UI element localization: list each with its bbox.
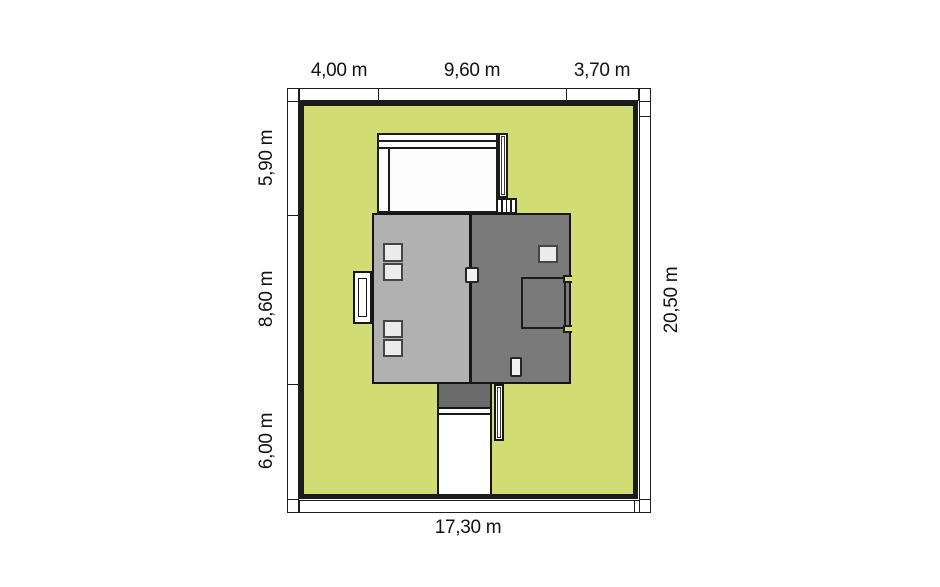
dimension-band-top xyxy=(287,88,651,101)
entrance-canopy xyxy=(437,384,492,409)
driveway xyxy=(437,415,492,494)
chimney xyxy=(510,357,522,377)
dimension-label-top-middle: 9,60 m xyxy=(422,60,522,82)
terrace-steps xyxy=(496,198,517,214)
site-plan: 4,00 m 9,60 m 3,70 m 5,90 m 8,60 m 6,00 … xyxy=(0,0,940,587)
chimney xyxy=(465,267,479,283)
dimension-label-left-upper: 5,90 m xyxy=(256,108,278,208)
dimension-band-right xyxy=(639,88,651,513)
dimension-tick xyxy=(640,116,650,118)
step-tread xyxy=(506,200,508,212)
entrance-step xyxy=(437,407,492,415)
wall-notch xyxy=(563,275,572,283)
dimension-label-top-right: 3,70 m xyxy=(552,60,652,82)
skylight xyxy=(383,263,403,281)
terrace-wall xyxy=(498,133,508,198)
terrace-edge-line xyxy=(388,149,390,211)
dimension-label-top-left: 4,00 m xyxy=(289,60,389,82)
roof-ridge xyxy=(469,215,472,382)
dimension-tick xyxy=(288,101,298,103)
dimension-tick xyxy=(634,501,636,512)
dimension-tick xyxy=(640,101,650,103)
dimension-band-bottom xyxy=(287,500,651,513)
dimension-label-left-lower: 6,00 m xyxy=(256,391,278,491)
dimension-label-right-total: 20,50 m xyxy=(661,250,683,350)
skylight xyxy=(383,320,403,338)
dimension-label-left-middle: 8,60 m xyxy=(256,249,278,349)
terrace-edge-line xyxy=(379,140,496,142)
wall-notch xyxy=(563,325,572,333)
dimension-tick xyxy=(288,215,298,217)
dimension-tick xyxy=(378,89,380,100)
skylight xyxy=(383,339,403,357)
dimension-band-left xyxy=(287,88,299,513)
skylight xyxy=(383,243,403,262)
step-tread xyxy=(501,200,503,212)
terrace xyxy=(377,133,498,213)
roof-recess-outline xyxy=(521,277,566,329)
step-tread xyxy=(510,200,512,212)
garden-wall xyxy=(494,384,504,441)
side-window-bay xyxy=(353,271,372,324)
skylight xyxy=(538,245,558,263)
dimension-label-bottom-total: 17,30 m xyxy=(418,517,518,539)
dimension-tick xyxy=(640,499,650,501)
terrace-edge-line xyxy=(379,147,496,149)
dimension-tick xyxy=(566,89,568,100)
dimension-tick xyxy=(288,384,298,386)
dimension-tick xyxy=(288,499,298,501)
